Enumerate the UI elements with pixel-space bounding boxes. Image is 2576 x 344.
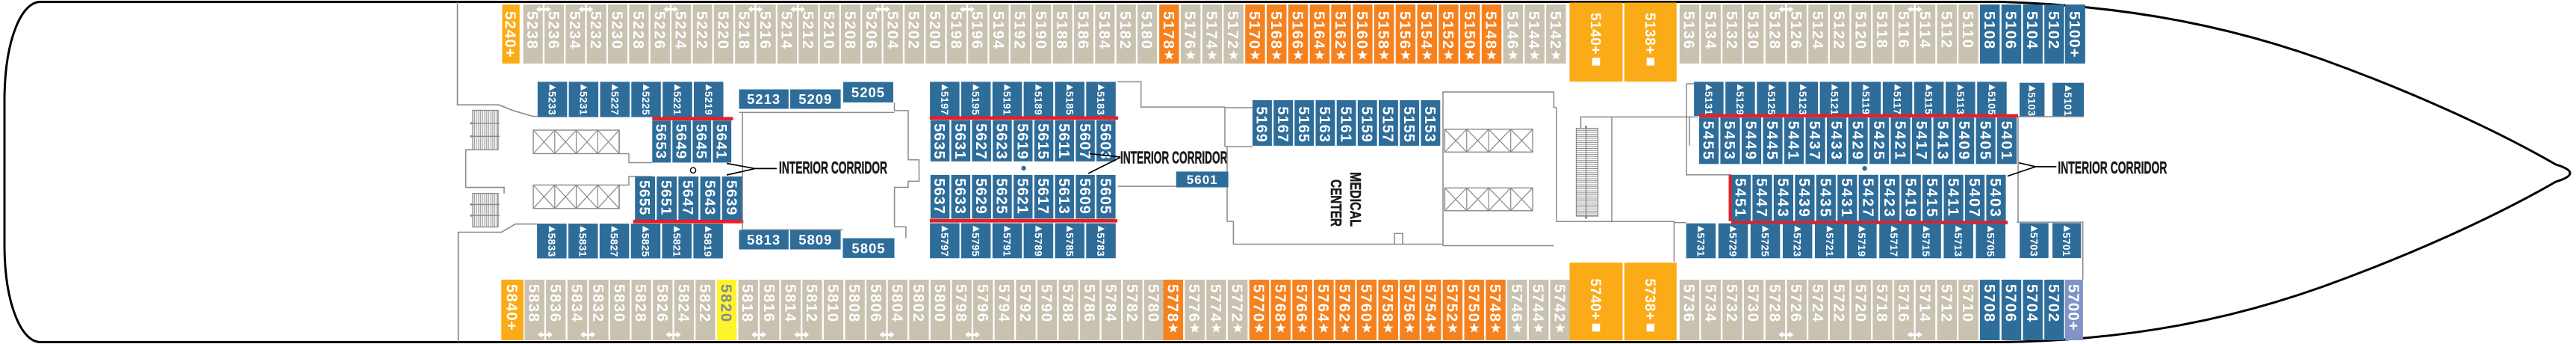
svg-text:5721: 5721 [1824, 233, 1835, 257]
svg-text:5784: 5784 [1102, 284, 1119, 323]
svg-text:5132: 5132 [1723, 11, 1740, 50]
svg-text:MEDICAL: MEDICAL [1347, 172, 1363, 227]
svg-text:5830: 5830 [611, 284, 628, 323]
svg-text:5756: 5756 [1400, 284, 1418, 323]
svg-text:5163: 5163 [1316, 106, 1332, 143]
svg-text:5752: 5752 [1444, 284, 1461, 323]
svg-text:5136: 5136 [1680, 11, 1698, 50]
svg-text:5213: 5213 [747, 91, 780, 107]
svg-text:5764: 5764 [1315, 284, 1332, 323]
svg-text:5226: 5226 [651, 11, 668, 50]
svg-text:5723: 5723 [1792, 233, 1803, 257]
svg-text:5162: 5162 [1332, 11, 1349, 50]
svg-text:5744: 5744 [1530, 284, 1547, 323]
svg-text:5700+: 5700+ [2064, 284, 2082, 331]
svg-text:5168: 5168 [1267, 11, 1285, 50]
svg-text:5729: 5729 [1728, 233, 1739, 257]
svg-text:5719: 5719 [1856, 233, 1867, 257]
svg-text:5746: 5746 [1508, 284, 1525, 323]
svg-text:5150: 5150 [1461, 11, 1478, 50]
svg-text:5405: 5405 [1976, 121, 1993, 162]
svg-text:5705: 5705 [1984, 233, 1996, 257]
svg-text:5423: 5423 [1881, 178, 1897, 218]
svg-text:5782: 5782 [1123, 284, 1140, 323]
svg-text:5724: 5724 [1809, 284, 1826, 323]
svg-text:5703: 5703 [2028, 233, 2039, 257]
svg-text:5758: 5758 [1379, 284, 1396, 323]
svg-text:5169: 5169 [1253, 106, 1270, 143]
svg-text:5156: 5156 [1396, 11, 1413, 50]
svg-text:5180: 5180 [1138, 11, 1155, 50]
svg-text:5816: 5816 [760, 284, 778, 323]
svg-text:5832: 5832 [589, 284, 606, 323]
svg-text:5188: 5188 [1053, 11, 1070, 50]
svg-text:5123: 5123 [1797, 91, 1808, 115]
svg-text:5108: 5108 [1981, 11, 1998, 50]
svg-text:5121: 5121 [1828, 91, 1840, 115]
svg-text:5788: 5788 [1059, 284, 1076, 323]
svg-text:5231: 5231 [577, 91, 589, 115]
svg-text:5813: 5813 [747, 232, 780, 248]
svg-text:5722: 5722 [1831, 284, 1848, 323]
svg-text:5800: 5800 [931, 284, 949, 323]
svg-text:5728: 5728 [1766, 284, 1784, 323]
svg-text:5119: 5119 [1860, 91, 1872, 115]
svg-text:5222: 5222 [693, 11, 710, 50]
svg-text:5649: 5649 [673, 124, 689, 159]
svg-text:5441: 5441 [1785, 121, 1801, 162]
svg-text:5413: 5413 [1934, 121, 1950, 162]
svg-text:5421: 5421 [1891, 121, 1908, 162]
svg-text:5112: 5112 [1937, 11, 1955, 49]
svg-text:5804: 5804 [888, 284, 905, 323]
svg-text:5778: 5778 [1164, 284, 1181, 323]
svg-text:5776: 5776 [1185, 284, 1202, 323]
svg-text:5831: 5831 [577, 233, 589, 257]
svg-text:5726: 5726 [1787, 284, 1804, 323]
svg-text:5116: 5116 [1895, 11, 1912, 49]
svg-text:5445: 5445 [1763, 121, 1780, 162]
svg-text:5798: 5798 [952, 284, 969, 323]
svg-text:5437: 5437 [1806, 121, 1822, 162]
svg-text:5819: 5819 [702, 233, 713, 257]
svg-text:5183: 5183 [1095, 91, 1106, 115]
svg-text:5645: 5645 [693, 124, 710, 159]
svg-text:INTERIOR CORRIDOR: INTERIOR CORRIDOR [1120, 147, 1228, 167]
svg-text:5725: 5725 [1760, 233, 1771, 257]
svg-text:5820: 5820 [718, 284, 735, 323]
svg-text:5605: 5605 [1097, 178, 1114, 215]
svg-text:5128: 5128 [1766, 11, 1784, 50]
svg-text:5219: 5219 [703, 91, 714, 115]
svg-text:5216: 5216 [757, 11, 774, 50]
svg-text:5113: 5113 [1955, 91, 1966, 115]
svg-text:5157: 5157 [1379, 106, 1396, 143]
svg-text:5160: 5160 [1353, 11, 1371, 50]
svg-text:5154: 5154 [1418, 11, 1435, 50]
svg-text:5792: 5792 [1017, 284, 1034, 323]
svg-text:5191: 5191 [1002, 91, 1013, 115]
svg-text:5192: 5192 [1011, 11, 1028, 50]
svg-text:5734: 5734 [1701, 284, 1719, 323]
svg-text:5194: 5194 [990, 11, 1007, 50]
svg-text:5449: 5449 [1742, 121, 1759, 162]
svg-text:5805: 5805 [851, 240, 885, 256]
svg-text:5810: 5810 [825, 284, 842, 323]
svg-text:5409: 5409 [1955, 121, 1972, 162]
svg-text:5411: 5411 [1944, 178, 1961, 218]
svg-text:5161: 5161 [1337, 106, 1353, 143]
svg-text:5785: 5785 [1064, 233, 1075, 257]
svg-text:5233: 5233 [547, 91, 558, 115]
svg-text:5730: 5730 [1745, 284, 1762, 323]
svg-text:5189: 5189 [1032, 91, 1043, 115]
svg-text:5643: 5643 [701, 180, 718, 215]
svg-text:5637: 5637 [931, 178, 947, 215]
svg-text:5124: 5124 [1809, 11, 1826, 50]
svg-text:5419: 5419 [1902, 178, 1918, 218]
svg-text:5403: 5403 [1987, 178, 2003, 218]
svg-text:5210: 5210 [820, 11, 837, 50]
svg-text:5738+: 5738+ [1642, 279, 1657, 321]
svg-text:5824: 5824 [674, 284, 692, 323]
svg-text:5126: 5126 [1787, 11, 1804, 50]
svg-text:5635: 5635 [931, 123, 947, 160]
svg-text:5791: 5791 [1002, 233, 1013, 257]
svg-text:5742: 5742 [1551, 284, 1568, 323]
svg-text:5651: 5651 [658, 180, 674, 215]
svg-text:5155: 5155 [1400, 106, 1417, 143]
svg-text:5623: 5623 [993, 123, 1010, 160]
svg-text:5196: 5196 [969, 11, 986, 50]
svg-text:5827: 5827 [609, 233, 620, 257]
svg-text:5164: 5164 [1310, 11, 1327, 50]
svg-text:5704: 5704 [2023, 284, 2040, 323]
svg-text:5796: 5796 [974, 284, 991, 323]
svg-text:5708: 5708 [1981, 284, 1998, 323]
svg-text:5166: 5166 [1289, 11, 1306, 50]
svg-text:5185: 5185 [1064, 91, 1075, 115]
svg-text:5633: 5633 [952, 178, 968, 215]
svg-text:5117: 5117 [1892, 91, 1903, 115]
svg-text:5129: 5129 [1734, 91, 1745, 115]
svg-text:5453: 5453 [1721, 121, 1737, 162]
svg-text:5190: 5190 [1032, 11, 1049, 50]
svg-text:5140+: 5140+ [1587, 13, 1603, 55]
svg-text:5165: 5165 [1295, 106, 1312, 143]
svg-text:5443: 5443 [1775, 178, 1791, 218]
svg-text:5214: 5214 [778, 11, 795, 50]
svg-text:5821: 5821 [671, 233, 682, 257]
svg-text:5236: 5236 [545, 11, 562, 50]
svg-text:5228: 5228 [630, 11, 647, 50]
svg-text:5766: 5766 [1293, 284, 1310, 323]
svg-text:5619: 5619 [1014, 123, 1030, 160]
svg-text:5167: 5167 [1274, 106, 1291, 143]
svg-text:5114: 5114 [1917, 11, 1934, 49]
svg-text:5710: 5710 [1959, 284, 1976, 323]
svg-text:INTERIOR CORRIDOR: INTERIOR CORRIDOR [2058, 158, 2167, 177]
svg-text:5433: 5433 [1828, 121, 1844, 162]
svg-text:5105: 5105 [1986, 91, 1997, 115]
svg-text:5209: 5209 [798, 91, 832, 107]
svg-text:5202: 5202 [905, 11, 922, 50]
svg-text:5772: 5772 [1229, 284, 1246, 323]
svg-text:5609: 5609 [1076, 178, 1093, 215]
svg-text:5808: 5808 [845, 284, 863, 323]
svg-text:5641: 5641 [713, 124, 730, 159]
svg-text:5240+: 5240+ [502, 11, 519, 58]
svg-text:5148: 5148 [1483, 11, 1500, 50]
svg-text:5120: 5120 [1852, 11, 1869, 50]
svg-text:5227: 5227 [609, 91, 620, 115]
svg-text:5732: 5732 [1723, 284, 1740, 323]
svg-text:5170: 5170 [1246, 11, 1263, 50]
svg-text:5152: 5152 [1439, 11, 1456, 50]
svg-text:5182: 5182 [1117, 11, 1134, 50]
svg-text:5172: 5172 [1224, 11, 1241, 50]
svg-text:5204: 5204 [884, 11, 901, 50]
svg-text:5198: 5198 [947, 11, 964, 50]
svg-text:5225: 5225 [640, 91, 651, 115]
svg-text:5415: 5415 [1923, 178, 1940, 218]
svg-text:5826: 5826 [654, 284, 671, 323]
svg-text:5200: 5200 [926, 11, 943, 50]
svg-text:5717: 5717 [1888, 233, 1899, 257]
svg-text:5427: 5427 [1860, 178, 1876, 218]
svg-text:5122: 5122 [1831, 11, 1848, 50]
svg-text:5130: 5130 [1745, 11, 1762, 50]
svg-text:5110: 5110 [1959, 11, 1976, 49]
svg-text:5401: 5401 [1998, 121, 2014, 162]
svg-text:5754: 5754 [1422, 284, 1439, 323]
svg-text:5814: 5814 [781, 284, 798, 323]
svg-text:5429: 5429 [1849, 121, 1865, 162]
svg-text:5625: 5625 [993, 178, 1010, 215]
svg-text:5718: 5718 [1873, 284, 1890, 323]
svg-text:5197: 5197 [939, 91, 950, 115]
svg-text:5224: 5224 [672, 11, 689, 50]
svg-text:5176: 5176 [1182, 11, 1199, 50]
svg-text:5655: 5655 [636, 180, 653, 215]
svg-text:5621: 5621 [1014, 178, 1030, 215]
svg-text:5184: 5184 [1096, 11, 1113, 50]
svg-text:5748: 5748 [1486, 284, 1503, 323]
svg-text:5104: 5104 [2023, 11, 2040, 50]
svg-text:5174: 5174 [1202, 11, 1220, 50]
svg-text:5232: 5232 [587, 11, 604, 50]
svg-text:5208: 5208 [842, 11, 859, 50]
svg-text:5822: 5822 [696, 284, 713, 323]
svg-text:5212: 5212 [799, 11, 816, 50]
svg-text:5702: 5702 [2045, 284, 2062, 323]
svg-text:5812: 5812 [803, 284, 820, 323]
svg-text:5740+: 5740+ [1587, 279, 1603, 321]
svg-text:5789: 5789 [1032, 233, 1043, 257]
svg-text:5159: 5159 [1359, 106, 1375, 143]
svg-text:5134: 5134 [1701, 11, 1719, 50]
svg-text:5833: 5833 [546, 233, 557, 257]
svg-text:5838: 5838 [525, 284, 542, 323]
svg-text:5770: 5770 [1250, 284, 1267, 323]
svg-text:5768: 5768 [1271, 284, 1288, 323]
svg-text:5153: 5153 [1421, 106, 1438, 143]
svg-text:5131: 5131 [1703, 91, 1714, 115]
svg-text:5836: 5836 [547, 284, 564, 323]
svg-text:5439: 5439 [1796, 178, 1812, 218]
svg-text:5639: 5639 [723, 180, 739, 215]
svg-text:5731: 5731 [1695, 233, 1706, 257]
svg-text:5102: 5102 [2045, 11, 2062, 50]
svg-text:5221: 5221 [671, 91, 683, 115]
svg-text:5206: 5206 [863, 11, 880, 50]
svg-text:5601: 5601 [1187, 173, 1218, 187]
svg-text:5220: 5220 [714, 11, 731, 50]
svg-text:5786: 5786 [1081, 284, 1098, 323]
svg-text:5234: 5234 [566, 11, 583, 50]
svg-text:5715: 5715 [1920, 233, 1931, 257]
svg-text:5100+: 5100+ [2066, 11, 2083, 58]
svg-text:5115: 5115 [1923, 91, 1934, 115]
svg-text:5720: 5720 [1852, 284, 1869, 323]
svg-text:5631: 5631 [952, 123, 968, 160]
svg-text:5790: 5790 [1038, 284, 1055, 323]
svg-text:5802: 5802 [910, 284, 927, 323]
svg-text:5774: 5774 [1207, 284, 1224, 323]
svg-text:5750: 5750 [1465, 284, 1482, 323]
svg-text:5195: 5195 [970, 91, 981, 115]
svg-text:5611: 5611 [1055, 123, 1072, 159]
svg-text:5146: 5146 [1503, 11, 1521, 50]
svg-text:5435: 5435 [1817, 178, 1834, 218]
svg-text:5713: 5713 [1952, 233, 1964, 257]
svg-text:5783: 5783 [1095, 233, 1106, 257]
svg-text:5142: 5142 [1547, 11, 1564, 50]
svg-text:5647: 5647 [680, 180, 696, 215]
svg-text:5797: 5797 [939, 233, 950, 257]
svg-text:INTERIOR CORRIDOR: INTERIOR CORRIDOR [779, 158, 887, 177]
svg-text:5101: 5101 [2062, 92, 2073, 116]
svg-text:5178: 5178 [1160, 11, 1177, 50]
svg-text:5425: 5425 [1870, 121, 1887, 162]
svg-text:5407: 5407 [1966, 178, 1982, 218]
svg-text:5218: 5218 [736, 11, 753, 50]
svg-text:5118: 5118 [1873, 11, 1890, 49]
svg-text:5158: 5158 [1375, 11, 1392, 50]
svg-text:5431: 5431 [1838, 178, 1855, 218]
svg-text:5653: 5653 [653, 124, 669, 159]
svg-text:5125: 5125 [1766, 91, 1777, 115]
svg-text:5186: 5186 [1075, 11, 1092, 50]
svg-text:5701: 5701 [2061, 233, 2072, 257]
svg-text:5617: 5617 [1034, 178, 1051, 215]
svg-text:5455: 5455 [1700, 121, 1716, 162]
svg-text:5840+: 5840+ [503, 284, 521, 331]
svg-text:5828: 5828 [632, 284, 649, 323]
svg-text:5762: 5762 [1336, 284, 1353, 323]
svg-text:5809: 5809 [798, 232, 832, 248]
svg-text:5736: 5736 [1680, 284, 1698, 323]
svg-text:5615: 5615 [1034, 123, 1051, 160]
svg-text:5834: 5834 [568, 284, 585, 323]
svg-text:5629: 5629 [972, 178, 989, 215]
svg-text:5238: 5238 [524, 11, 541, 50]
svg-text:5794: 5794 [995, 284, 1012, 323]
svg-text:5760: 5760 [1357, 284, 1374, 323]
svg-text:5138+: 5138+ [1642, 13, 1657, 55]
svg-text:CENTER: CENTER [1327, 179, 1344, 227]
svg-text:5712: 5712 [1937, 284, 1955, 323]
svg-text:5825: 5825 [639, 233, 651, 257]
svg-text:5714: 5714 [1917, 284, 1934, 323]
svg-text:5106: 5106 [2002, 11, 2020, 50]
svg-text:5780: 5780 [1145, 284, 1162, 323]
svg-text:5795: 5795 [970, 233, 981, 257]
svg-text:5451: 5451 [1732, 178, 1748, 218]
svg-text:5447: 5447 [1753, 178, 1769, 218]
svg-text:5230: 5230 [609, 11, 626, 50]
svg-text:5806: 5806 [867, 284, 884, 323]
svg-text:5613: 5613 [1055, 178, 1072, 215]
svg-text:5706: 5706 [2002, 284, 2020, 323]
svg-text:5818: 5818 [739, 284, 756, 323]
svg-text:5205: 5205 [851, 85, 885, 100]
svg-text:5627: 5627 [972, 123, 989, 160]
svg-text:5716: 5716 [1895, 284, 1912, 323]
svg-text:5144: 5144 [1525, 11, 1542, 50]
svg-text:5417: 5417 [1913, 121, 1929, 162]
svg-text:5103: 5103 [2026, 92, 2037, 116]
